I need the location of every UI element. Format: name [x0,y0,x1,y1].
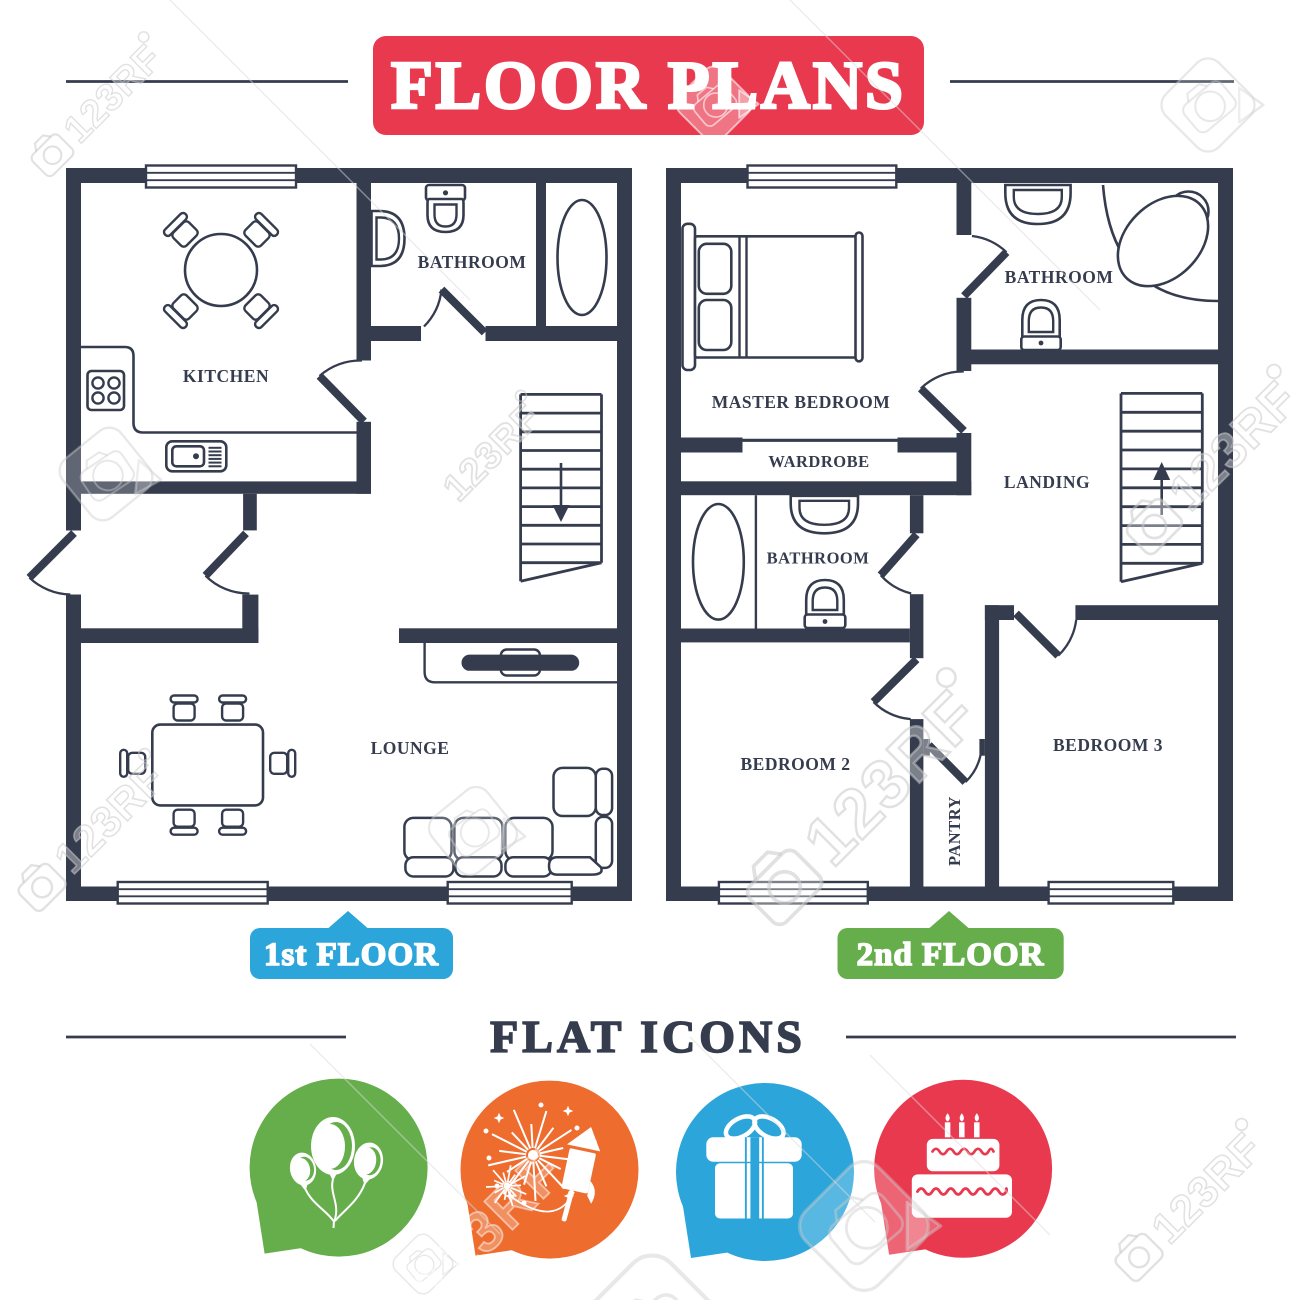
svg-text:BATHROOM: BATHROOM [767,549,870,568]
svg-text:WARDROBE: WARDROBE [768,452,869,471]
svg-text:KITCHEN: KITCHEN [183,366,269,386]
svg-text:LANDING: LANDING [1004,472,1090,492]
svg-text:BEDROOM 2: BEDROOM 2 [741,754,851,774]
svg-text:FLAT ICONS: FLAT ICONS [490,1011,806,1062]
svg-text:MASTER BEDROOM: MASTER BEDROOM [712,392,891,412]
svg-text:FLOOR PLANS: FLOOR PLANS [391,47,906,123]
svg-text:BATHROOM: BATHROOM [1005,267,1114,287]
svg-text:LOUNGE: LOUNGE [371,738,450,758]
svg-text:1st FLOOR: 1st FLOOR [264,937,439,973]
svg-text:PANTRY: PANTRY [945,796,964,866]
svg-text:2nd FLOOR: 2nd FLOOR [857,937,1045,973]
svg-text:BEDROOM 3: BEDROOM 3 [1053,735,1163,755]
svg-text:BATHROOM: BATHROOM [418,252,527,272]
